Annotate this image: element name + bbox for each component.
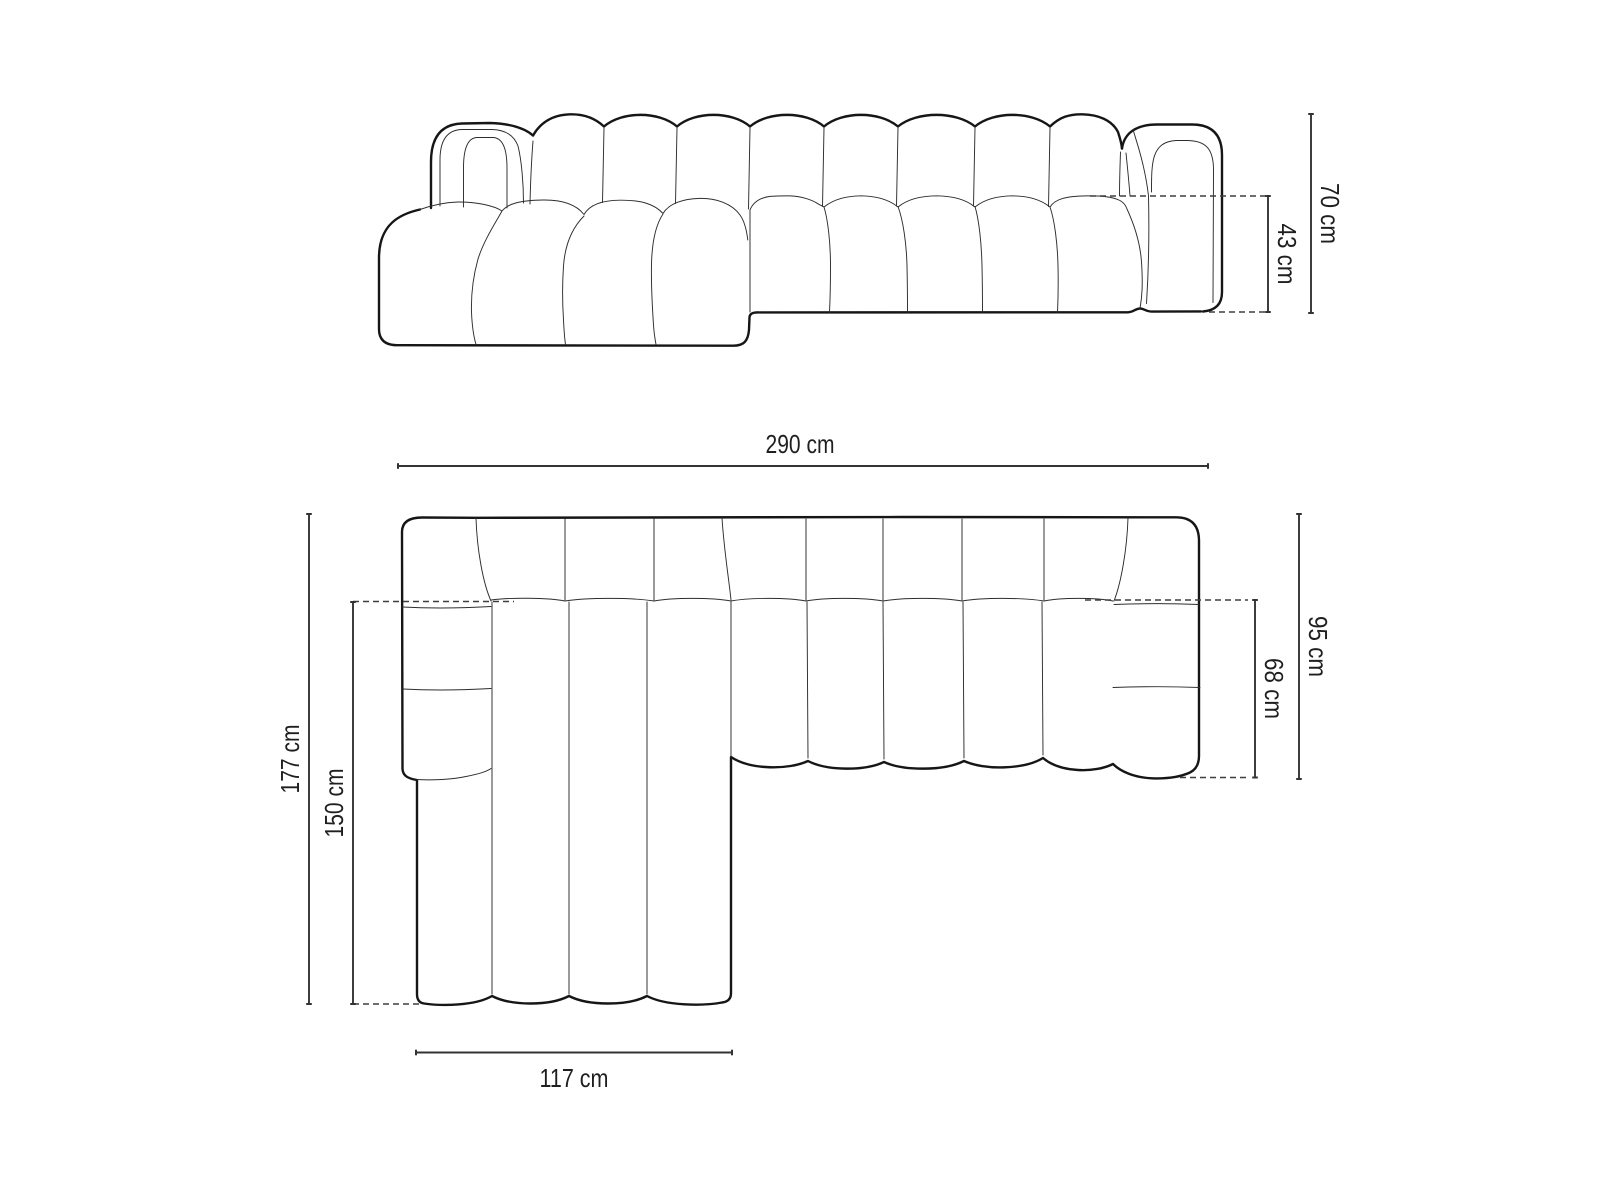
svg-text:95 cm: 95 cm (1303, 616, 1333, 677)
svg-text:68 cm: 68 cm (1259, 658, 1289, 719)
svg-text:70 cm: 70 cm (1315, 183, 1345, 244)
svg-text:150 cm: 150 cm (319, 769, 349, 838)
svg-text:117 cm: 117 cm (540, 1063, 609, 1093)
svg-text:290 cm: 290 cm (766, 429, 835, 459)
svg-text:177 cm: 177 cm (275, 725, 305, 794)
svg-text:43 cm: 43 cm (1272, 224, 1302, 285)
